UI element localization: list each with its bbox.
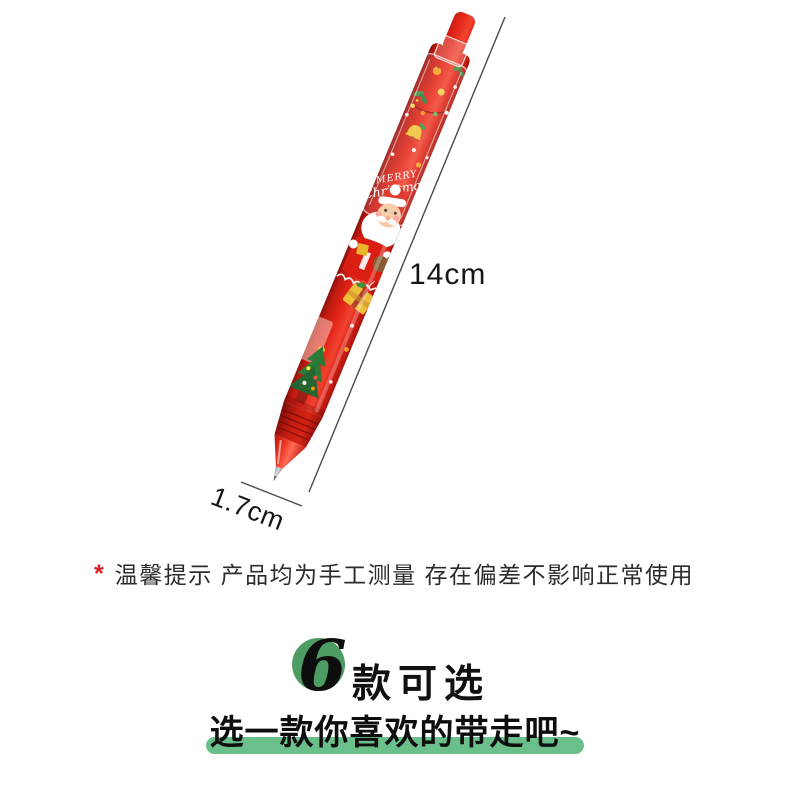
pen-tip [270,466,282,483]
product-page: MERRY Christmas [0,0,790,790]
subtitle-text: 选一款你喜欢的带走吧~ [210,714,581,752]
notice-text: 温馨提示 产品均为手工测量 存在偏差不影响正常使用 [115,564,694,587]
length-dimension-line [309,17,505,492]
count-number: 6 [298,631,347,701]
length-label: 14cm [409,260,486,290]
count-suffix: 款可选 [352,665,490,704]
subtitle-inner: 选一款你喜欢的带走吧~ [210,713,581,754]
subtitle-row: 选一款你喜欢的带走吧~ [0,713,790,754]
notice-asterisk: * [94,562,104,587]
notice-line: * 温馨提示 产品均为手工测量 存在偏差不影响正常使用 [94,560,694,585]
pen-clip [359,30,479,228]
